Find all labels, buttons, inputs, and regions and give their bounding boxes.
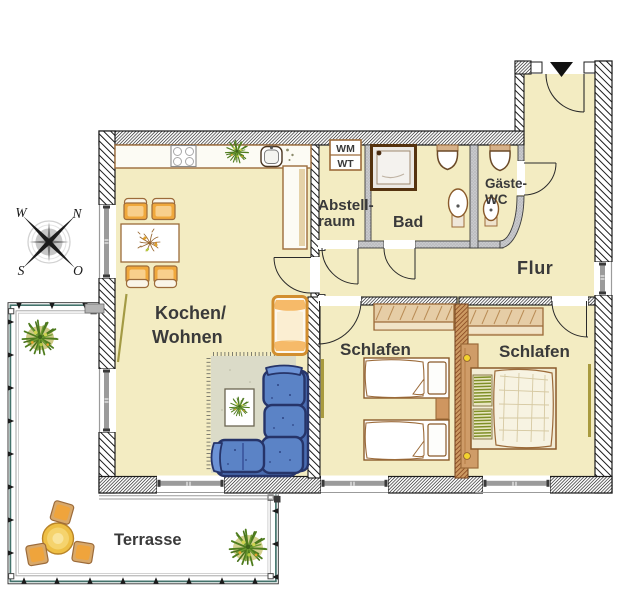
svg-text:S: S — [18, 263, 25, 278]
svg-text:Gäste-: Gäste- — [485, 176, 527, 191]
svg-text:Abstell-: Abstell- — [318, 197, 374, 214]
svg-text:Kochen/: Kochen/ — [155, 303, 226, 323]
svg-text:Wohnen: Wohnen — [152, 327, 223, 347]
svg-text:raum: raum — [318, 213, 355, 230]
svg-text:N: N — [71, 206, 82, 221]
svg-text:Flur: Flur — [517, 258, 553, 278]
svg-text:Bad: Bad — [393, 214, 423, 231]
svg-text:WM: WM — [336, 143, 355, 155]
svg-text:WT: WT — [337, 158, 354, 170]
svg-text:Schlafen: Schlafen — [499, 342, 570, 361]
svg-text:Schlafen: Schlafen — [340, 340, 411, 359]
svg-text:Terrasse: Terrasse — [114, 531, 182, 549]
svg-text:W: W — [15, 205, 28, 220]
svg-text:WC: WC — [485, 192, 508, 207]
svg-text:O: O — [73, 263, 83, 278]
